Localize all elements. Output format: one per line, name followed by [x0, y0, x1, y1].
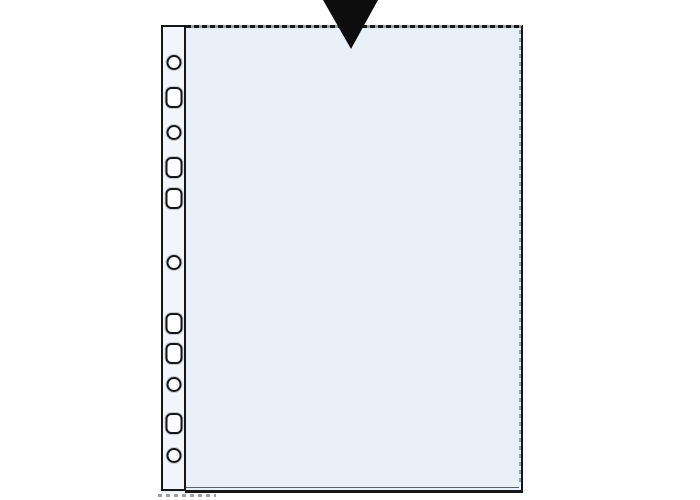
seam-bottom [186, 487, 519, 489]
punch-hole-round [166, 377, 181, 392]
punch-hole-oval [165, 87, 182, 108]
filing-strip [161, 25, 186, 491]
punch-hole-round [166, 448, 181, 463]
punch-hole-oval [165, 343, 182, 364]
sheet-protector [161, 25, 523, 493]
punch-hole-oval [165, 157, 182, 178]
edge-right [521, 26, 524, 493]
edge-bottom [185, 490, 523, 493]
punch-hole-round [166, 55, 181, 70]
punch-hole-oval [165, 413, 182, 434]
punch-hole-round [166, 125, 181, 140]
punch-hole-round [166, 255, 181, 270]
punch-hole-oval [165, 313, 182, 334]
weld-seam-bottom-left [158, 494, 216, 497]
product-illustration [0, 0, 700, 500]
punch-hole-oval [165, 188, 182, 209]
arrow-down-icon [323, 0, 378, 49]
